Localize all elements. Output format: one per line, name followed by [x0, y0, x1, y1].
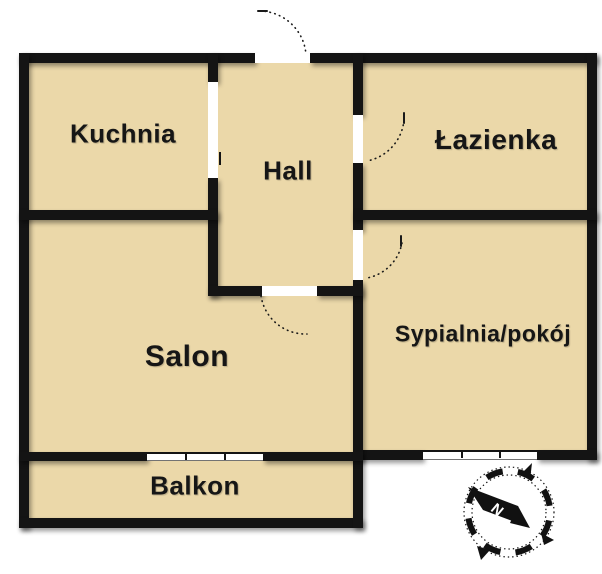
room-label-sypialnia: Sypialnia/pokój: [395, 321, 571, 348]
entrance-door-arc: [260, 11, 306, 55]
entrance-door-opening: [255, 53, 310, 63]
compass-needle: [468, 487, 523, 525]
kuchnia-door-leaf-tick: [219, 152, 221, 165]
wall-bottom-sypialnia-left: [353, 450, 423, 460]
room-label-balkon: Balkon: [150, 471, 240, 502]
compass-spike-se: [541, 533, 554, 545]
compass-spike-ne: [521, 463, 532, 480]
room-label-kuchnia: Kuchnia: [70, 119, 176, 150]
sypialnia-window: [423, 450, 537, 460]
wall-salon-balkon-right: [263, 452, 363, 461]
wall-hall-lazienka-upper: [353, 53, 363, 115]
wall-lazienka-sypialnia: [353, 210, 597, 220]
sypialnia-door-opening: [353, 230, 363, 280]
room-label-lazienka: Łazienka: [435, 124, 557, 156]
wall-kuchnia-hall-lower: [208, 178, 218, 296]
wall-right: [587, 53, 597, 460]
window-mullion-tick: [461, 452, 463, 458]
floor-plan: Kuchnia Hall Łazienka Sypialnia/pokój Sa…: [0, 0, 602, 574]
wall-salon-balkon-left: [19, 452, 147, 461]
room-label-salon: Salon: [145, 340, 229, 374]
compass-rose: N: [460, 463, 557, 561]
wall-kuchnia-salon: [19, 210, 218, 220]
compass-outer-dotted-ring: [464, 467, 554, 557]
compass-spike-sw: [477, 546, 490, 560]
window-mullion-tick: [499, 452, 501, 458]
wall-salon-sypialnia: [353, 280, 363, 528]
salon-balkon-window: [147, 452, 263, 461]
compass-ring-segments: [460, 463, 557, 560]
compass-inner-dotted-ring: [472, 475, 546, 549]
wall-bottom-sypialnia-right: [537, 450, 597, 460]
kuchnia-door-opening: [208, 82, 218, 178]
wall-hall-salon-right: [317, 286, 363, 296]
room-label-hall: Hall: [263, 156, 313, 187]
window-mullion-tick: [185, 454, 187, 460]
wall-hall-salon-left: [208, 286, 262, 296]
wall-bottom-balkon: [19, 518, 363, 528]
wall-top-left: [19, 53, 255, 63]
compass-north-label: N: [487, 500, 506, 520]
window-mullion-tick: [224, 454, 226, 460]
wall-kuchnia-hall-upper: [208, 53, 218, 82]
lazienka-door-opening: [353, 115, 363, 163]
salon-door-opening: [262, 286, 317, 296]
compass-needle-tail: [510, 506, 530, 528]
